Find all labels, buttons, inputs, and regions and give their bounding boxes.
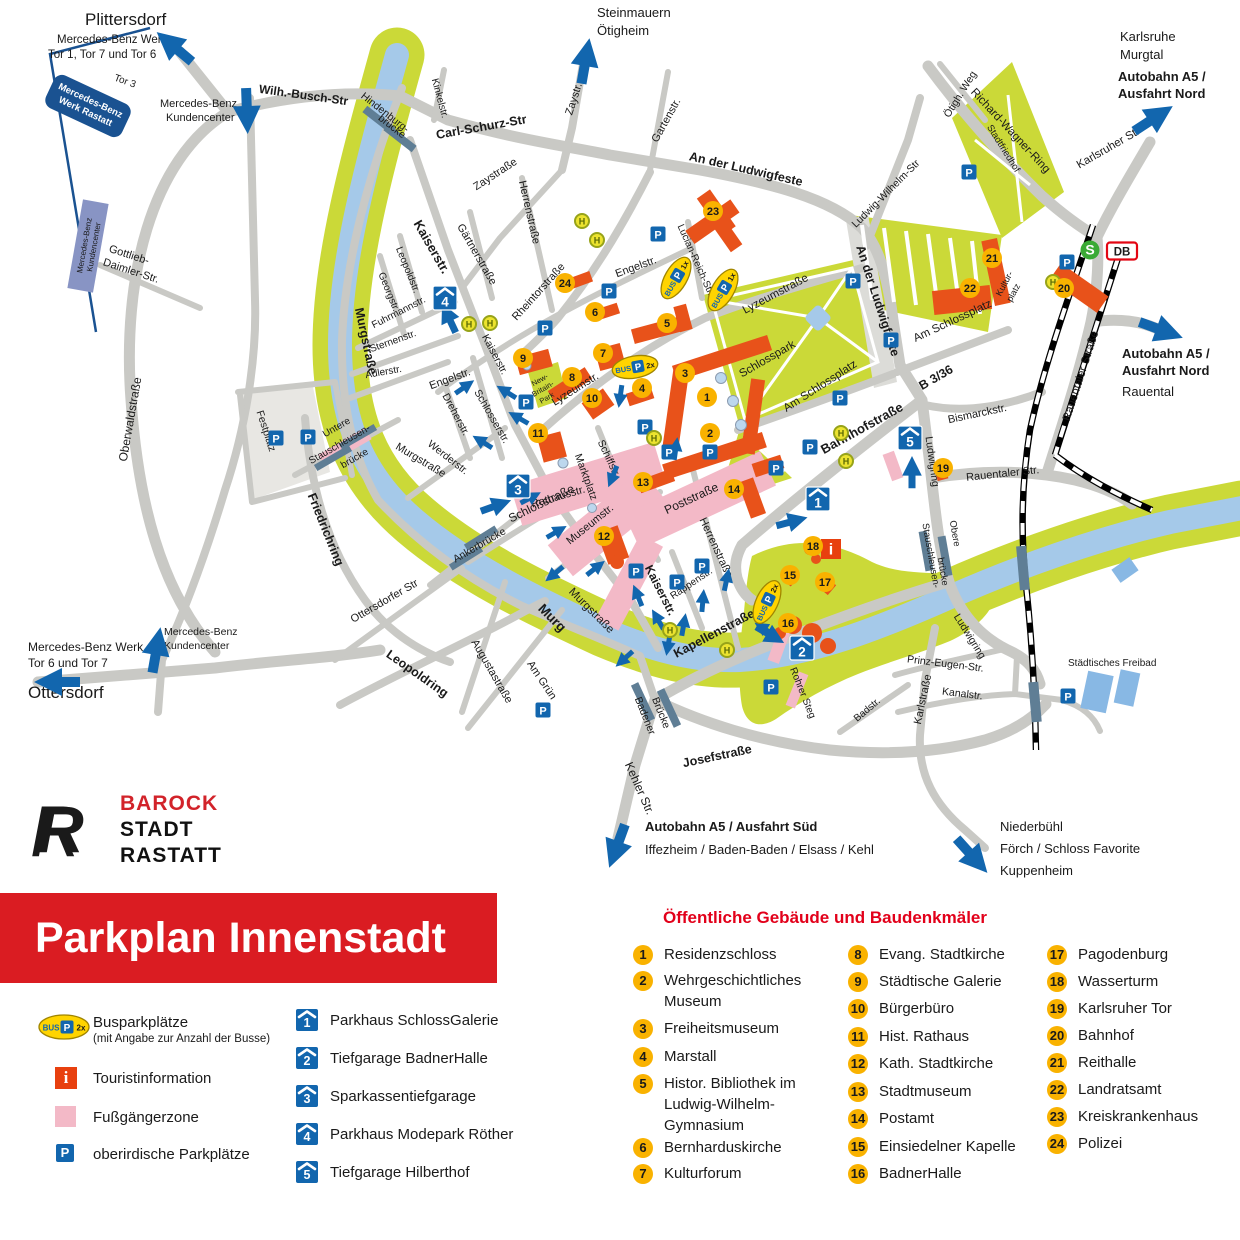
svg-text:Friedrichring: Friedrichring [305, 491, 347, 568]
svg-text:Tor 1, Tor 7 und Tor 6: Tor 1, Tor 7 und Tor 6 [48, 49, 156, 61]
svg-text:P: P [539, 706, 546, 718]
svg-text:Am Grün: Am Grün [524, 659, 559, 702]
svg-text:Mercedes-Benz Werk: Mercedes-Benz Werk [57, 34, 168, 46]
svg-text:Iffezheim / Baden-Baden / Elsa: Iffezheim / Baden-Baden / Elsass / Kehl [645, 842, 874, 857]
svg-text:P: P [1064, 692, 1071, 704]
garage-marker-1: 1 [806, 487, 830, 511]
svg-text:P: P [665, 448, 672, 460]
svg-text:H: H [594, 236, 601, 246]
svg-text:11: 11 [532, 428, 544, 440]
svg-text:Niederbühl: Niederbühl [1000, 819, 1063, 834]
svg-text:19: 19 [937, 463, 949, 475]
garage-list-item: 2 Tiefgarage BadnerHalle [296, 1047, 488, 1069]
svg-text:Ausfahrt Nord: Ausfahrt Nord [1118, 86, 1205, 101]
svg-text:Kuppenheim: Kuppenheim [1000, 863, 1073, 878]
svg-text:Autobahn A5 / Ausfahrt Süd: Autobahn A5 / Ausfahrt Süd [645, 819, 817, 834]
svg-text:H: H [579, 217, 586, 227]
garage-4-icon: 4 [296, 1123, 318, 1145]
svg-text:Mercedes-Benz Werk: Mercedes-Benz Werk [28, 640, 144, 654]
svg-text:P: P [887, 336, 894, 348]
garage-marker-3: 3 [506, 474, 530, 498]
title-banner: Parkplan Innenstadt [0, 893, 497, 983]
city-map: Mercedes-Benz Werk Rastatt Mercedes-Benz… [0, 0, 1240, 890]
svg-text:P: P [767, 683, 774, 695]
svg-text:Ludwig-Wilhelm-Str: Ludwig-Wilhelm-Str [849, 157, 922, 230]
svg-text:H: H [466, 320, 473, 330]
legend-bus-label: Busparkplätze [93, 1014, 188, 1031]
svg-text:H: H [838, 429, 845, 439]
svg-text:3: 3 [682, 368, 688, 380]
svg-text:4: 4 [441, 295, 449, 310]
svg-text:Zaystr.: Zaystr. [563, 82, 585, 117]
svg-text:Kundencenter: Kundencenter [164, 640, 230, 652]
mercedes-kundencenter-box: Mercedes-Benz Kundencenter [67, 199, 108, 292]
svg-text:P: P [836, 394, 843, 406]
svg-text:Städtisches Freibad: Städtisches Freibad [1068, 658, 1156, 669]
svg-text:P: P [965, 168, 972, 180]
svg-text:Badstr.: Badstr. [852, 696, 883, 724]
svg-text:H: H [724, 646, 731, 656]
garage-2-icon: 2 [296, 1047, 318, 1069]
svg-text:9: 9 [520, 353, 526, 365]
svg-text:1: 1 [704, 392, 710, 404]
svg-text:Ötigheim: Ötigheim [597, 23, 649, 38]
svg-text:Tor 6 und Tor 7: Tor 6 und Tor 7 [28, 656, 108, 670]
svg-text:P: P [706, 448, 713, 460]
svg-text:1: 1 [304, 1016, 311, 1030]
svg-text:Obere: Obere [947, 520, 962, 548]
svg-text:P: P [806, 443, 813, 455]
svg-text:B 3/36: B 3/36 [917, 362, 956, 393]
svg-text:8: 8 [569, 372, 575, 384]
legend-pedestrian-label: Fußgängerzone [93, 1109, 199, 1126]
svg-text:DB: DB [1114, 247, 1131, 259]
svg-text:P: P [641, 423, 648, 435]
page-title: Parkplan Innenstadt [0, 893, 497, 983]
svg-text:S: S [1085, 242, 1094, 258]
garage-list-item: 1 Parkhaus SchlossGalerie [296, 1009, 498, 1031]
svg-text:H: H [651, 434, 658, 444]
tourist-info-legend-icon: i [55, 1067, 77, 1089]
garage-1-icon: 1 [296, 1009, 318, 1031]
svg-text:7: 7 [600, 348, 606, 360]
db-icon: DB [1107, 243, 1137, 260]
svg-text:P: P [632, 567, 639, 579]
svg-text:15: 15 [784, 570, 796, 582]
svg-text:16: 16 [782, 618, 794, 630]
svg-text:P: P [849, 277, 856, 289]
svg-text:P: P [698, 562, 705, 574]
garage-marker-4: 4 [433, 286, 457, 310]
svg-text:17: 17 [819, 577, 831, 589]
svg-text:21: 21 [986, 253, 998, 265]
svg-text:13: 13 [637, 477, 649, 489]
garage-list-item: 3 Sparkassentiefgarage [296, 1085, 476, 1107]
svg-text:6: 6 [592, 307, 598, 319]
svg-text:Autobahn A5 /: Autobahn A5 / [1122, 346, 1210, 361]
svg-text:Karlsruhe: Karlsruhe [1120, 29, 1176, 44]
svg-text:Dreherstr.: Dreherstr. [440, 391, 472, 437]
svg-text:Rauentaler Str.: Rauentaler Str. [966, 464, 1040, 484]
surface-parking-legend-icon: P [56, 1144, 74, 1162]
svg-text:2x: 2x [77, 1024, 86, 1033]
svg-text:3: 3 [304, 1092, 311, 1106]
svg-text:P: P [272, 434, 279, 446]
svg-text:10: 10 [586, 393, 598, 405]
svg-text:H: H [843, 457, 850, 467]
garage-5-icon: 5 [296, 1161, 318, 1183]
svg-text:12: 12 [598, 531, 610, 543]
svg-text:H: H [487, 319, 494, 329]
logo-mark: R R [30, 786, 110, 872]
svg-text:P: P [1063, 258, 1070, 270]
svg-text:23: 23 [707, 206, 719, 218]
svg-text:Mercedes-Benz: Mercedes-Benz [164, 626, 238, 638]
svg-text:Mercedes-Benz: Mercedes-Benz [160, 98, 237, 110]
garage-3-icon: 3 [296, 1085, 318, 1107]
barock-stadt-rastatt-logo: R R BAROCK STADT RASTATT [30, 786, 310, 876]
svg-text:P: P [522, 398, 529, 410]
svg-text:2: 2 [304, 1054, 311, 1068]
svg-text:Ausfahrt Nord: Ausfahrt Nord [1122, 363, 1209, 378]
svg-text:22: 22 [964, 283, 976, 295]
svg-text:Förch / Schloss Favorite: Förch / Schloss Favorite [1000, 841, 1140, 856]
legend-bus-sublabel: (mit Angabe zur Anzahl der Busse) [93, 1033, 270, 1045]
svg-text:Karlstraße: Karlstraße [912, 673, 934, 725]
svg-text:4: 4 [639, 383, 646, 395]
sbahn-icon: S [1081, 241, 1100, 260]
svg-text:Plittersdorf: Plittersdorf [85, 10, 167, 29]
svg-text:3: 3 [514, 483, 522, 498]
garage-marker-5: 5 [898, 426, 922, 450]
garage-marker-2: 2 [790, 636, 814, 660]
svg-text:Gartenstr.: Gartenstr. [649, 97, 683, 145]
svg-text:Steinmauern: Steinmauern [597, 5, 671, 20]
logo-text-barock: BAROCK [120, 792, 218, 816]
svg-text:1: 1 [814, 496, 822, 511]
svg-text:Murgtal: Murgtal [1120, 47, 1163, 62]
legend-parking-label: oberirdische Parkplätze [93, 1146, 250, 1163]
svg-text:P: P [541, 324, 548, 336]
svg-text:2: 2 [798, 645, 806, 660]
svg-text:Rauental: Rauental [1122, 384, 1174, 399]
garage-list-item: 4 Parkhaus Modepark Röther [296, 1123, 513, 1145]
svg-text:5: 5 [664, 318, 670, 330]
buildings-heading: Öffentliche Gebäude und Baudenkmäler [663, 908, 987, 928]
svg-text:Autobahn A5 /: Autobahn A5 / [1118, 69, 1206, 84]
svg-text:Josefstraße: Josefstraße [681, 742, 753, 770]
svg-text:Zaystraße: Zaystraße [471, 156, 519, 193]
svg-text:P: P [772, 464, 779, 476]
station-logos: S DB [1081, 241, 1138, 260]
svg-text:H: H [667, 626, 674, 636]
svg-text:2: 2 [707, 428, 713, 440]
svg-text:BUS: BUS [43, 1024, 61, 1033]
svg-text:14: 14 [728, 484, 741, 496]
logo-text-stadt: STADT [120, 818, 193, 842]
freibad-buildings [1080, 557, 1140, 713]
svg-text:24: 24 [559, 278, 572, 290]
pedestrian-zone-legend-icon [55, 1106, 76, 1127]
svg-text:P: P [605, 287, 612, 299]
svg-text:P: P [64, 1023, 71, 1034]
svg-text:P: P [673, 578, 680, 590]
svg-text:i: i [829, 542, 833, 559]
legend-tourist-label: Touristinformation [93, 1070, 211, 1087]
bus-parking-legend-icon: BUSP2x [38, 1012, 90, 1042]
svg-text:P: P [304, 433, 311, 445]
svg-text:18: 18 [807, 541, 819, 553]
garage-list-item: 5 Tiefgarage Hilberthof [296, 1161, 470, 1183]
tourist-info-marker: i [821, 539, 841, 559]
svg-text:5: 5 [906, 435, 914, 450]
svg-text:20: 20 [1058, 283, 1070, 295]
parkplan-page: Mercedes-Benz Werk Rastatt Mercedes-Benz… [0, 0, 1240, 1240]
logo-text-rastatt: RASTATT [120, 844, 222, 868]
tor3-label: Tor 3 [113, 73, 138, 91]
svg-text:4: 4 [304, 1130, 311, 1144]
svg-text:R: R [30, 792, 82, 872]
svg-text:P: P [654, 230, 661, 242]
svg-text:5: 5 [304, 1168, 311, 1182]
svg-text:Kundencenter: Kundencenter [166, 112, 235, 124]
